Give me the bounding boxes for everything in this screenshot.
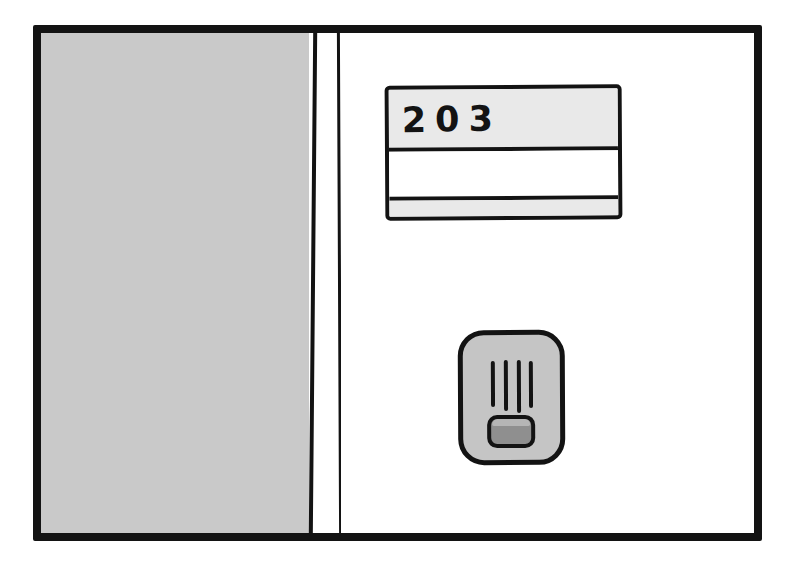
intercom-unit	[458, 330, 566, 466]
panel-interior: 203	[41, 33, 754, 533]
comic-panel-scene: 203	[0, 0, 800, 561]
nameplate-bottom-strip	[389, 199, 618, 216]
doorbell-button	[487, 415, 535, 448]
button-highlight	[492, 419, 530, 426]
speaker-slits-icon	[488, 359, 536, 417]
door-jamb-line-outer	[309, 33, 317, 533]
nameplate-number-row: 203	[389, 88, 618, 151]
wall-section	[41, 33, 309, 533]
room-number-label: 203	[401, 99, 502, 138]
nameplate-name-row	[389, 150, 618, 200]
room-nameplate: 203	[385, 84, 623, 220]
panel-frame: 203	[33, 25, 762, 541]
